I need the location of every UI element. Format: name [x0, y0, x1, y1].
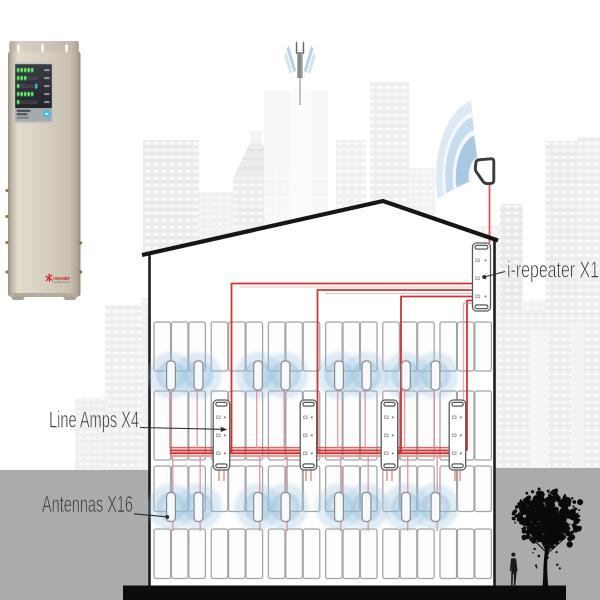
svg-text:Line Amps X4: Line Amps X4 — [49, 407, 139, 433]
svg-text:i-repeater: i-repeater — [53, 276, 70, 282]
svg-text:i-repeater X1: i-repeater X1 — [507, 257, 599, 283]
svg-text:Antennas X16: Antennas X16 — [42, 491, 133, 517]
